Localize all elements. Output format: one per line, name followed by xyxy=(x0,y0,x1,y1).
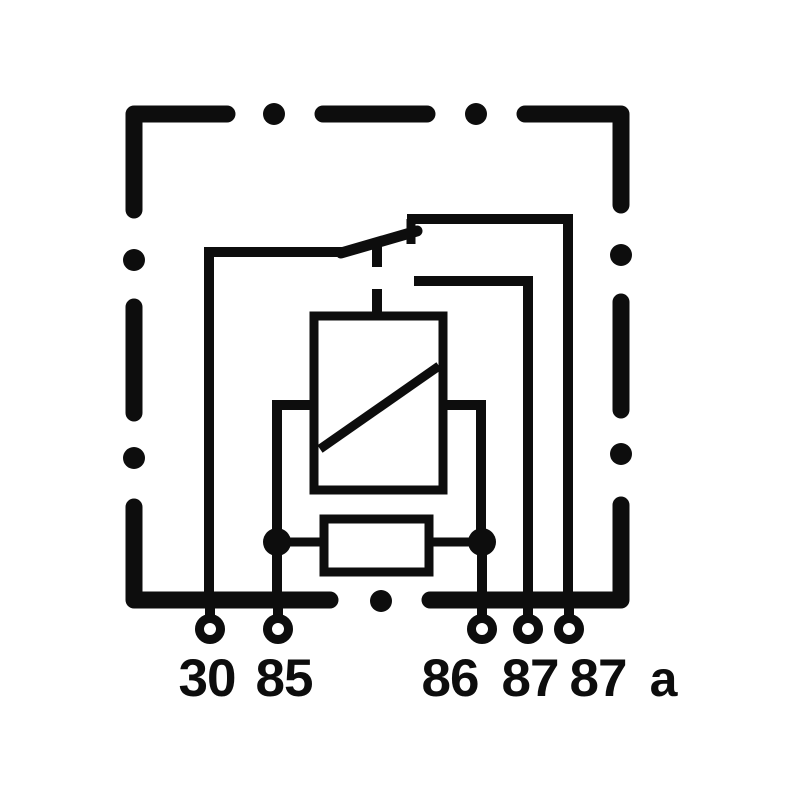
terminal-86-ring xyxy=(472,619,493,640)
terminal-86-label: 86 xyxy=(422,649,479,708)
terminal-85-label: 85 xyxy=(256,649,313,708)
terminal-30-label: 30 xyxy=(179,649,236,708)
border-corner-bottom-left xyxy=(134,507,330,600)
border-dot xyxy=(610,244,632,266)
terminal-85-ring xyxy=(268,619,289,640)
border-dot xyxy=(465,103,487,125)
relay-schematic-svg: 30 85 86 87 87 a xyxy=(0,0,800,800)
border-corner-top-right xyxy=(525,114,621,205)
border-corner-top-left xyxy=(134,114,227,210)
coil-yoke-left xyxy=(277,405,314,545)
border-dot xyxy=(263,103,285,125)
border-dot xyxy=(123,447,145,469)
border-dot xyxy=(123,249,145,271)
border-dot xyxy=(610,443,632,465)
terminal-87a-suffix-label: a xyxy=(650,651,679,707)
relay-circuit xyxy=(209,219,568,600)
terminal-87-ring xyxy=(518,619,539,640)
coil-yoke-right xyxy=(443,405,481,545)
terminal-30-ring xyxy=(200,619,221,640)
terminal-87a-ring xyxy=(559,619,580,640)
terminal-87-label: 87 xyxy=(502,649,559,708)
relay-diagram: 30 85 86 87 87 a xyxy=(0,0,800,800)
terminal-87a-number-label: 87 xyxy=(570,649,627,708)
terminal-labels: 30 85 86 87 87 a xyxy=(179,649,679,708)
border-dot xyxy=(370,590,392,612)
resistor xyxy=(324,519,429,572)
